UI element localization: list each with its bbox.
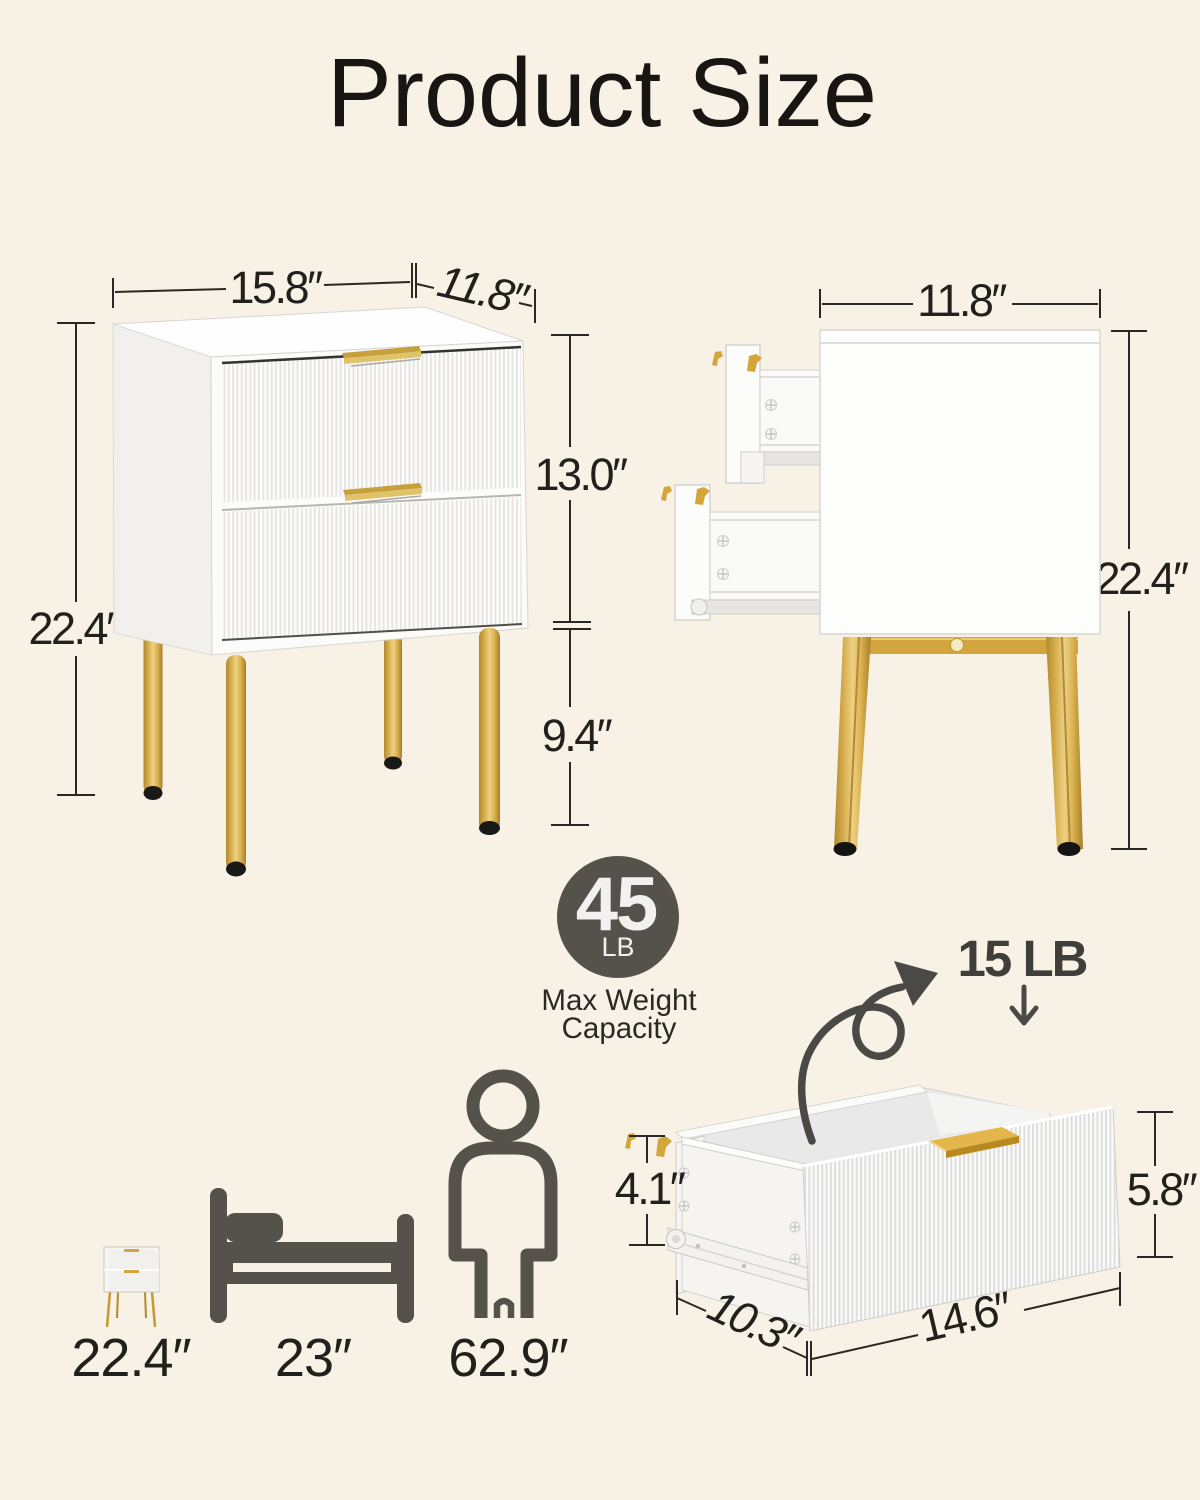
svg-text:11.8″: 11.8″ <box>917 275 1007 326</box>
svg-text:22.4″: 22.4″ <box>71 1328 191 1388</box>
svg-text:23″: 23″ <box>275 1328 352 1388</box>
svg-text:Capacity: Capacity <box>562 1012 677 1045</box>
svg-text:13.0″: 13.0″ <box>534 449 628 500</box>
svg-text:15.8″: 15.8″ <box>229 262 323 313</box>
svg-text:9.4″: 9.4″ <box>542 710 613 761</box>
svg-text:5.8″: 5.8″ <box>1127 1164 1198 1215</box>
svg-text:4.1″: 4.1″ <box>615 1163 686 1214</box>
svg-text:LB: LB <box>601 932 634 962</box>
svg-text:15 LB: 15 LB <box>958 930 1087 987</box>
svg-text:22.4″: 22.4″ <box>28 603 122 654</box>
svg-text:22.4″: 22.4″ <box>1095 553 1189 604</box>
svg-text:62.9″: 62.9″ <box>448 1328 568 1388</box>
svg-text:Product Size: Product Size <box>327 38 877 147</box>
